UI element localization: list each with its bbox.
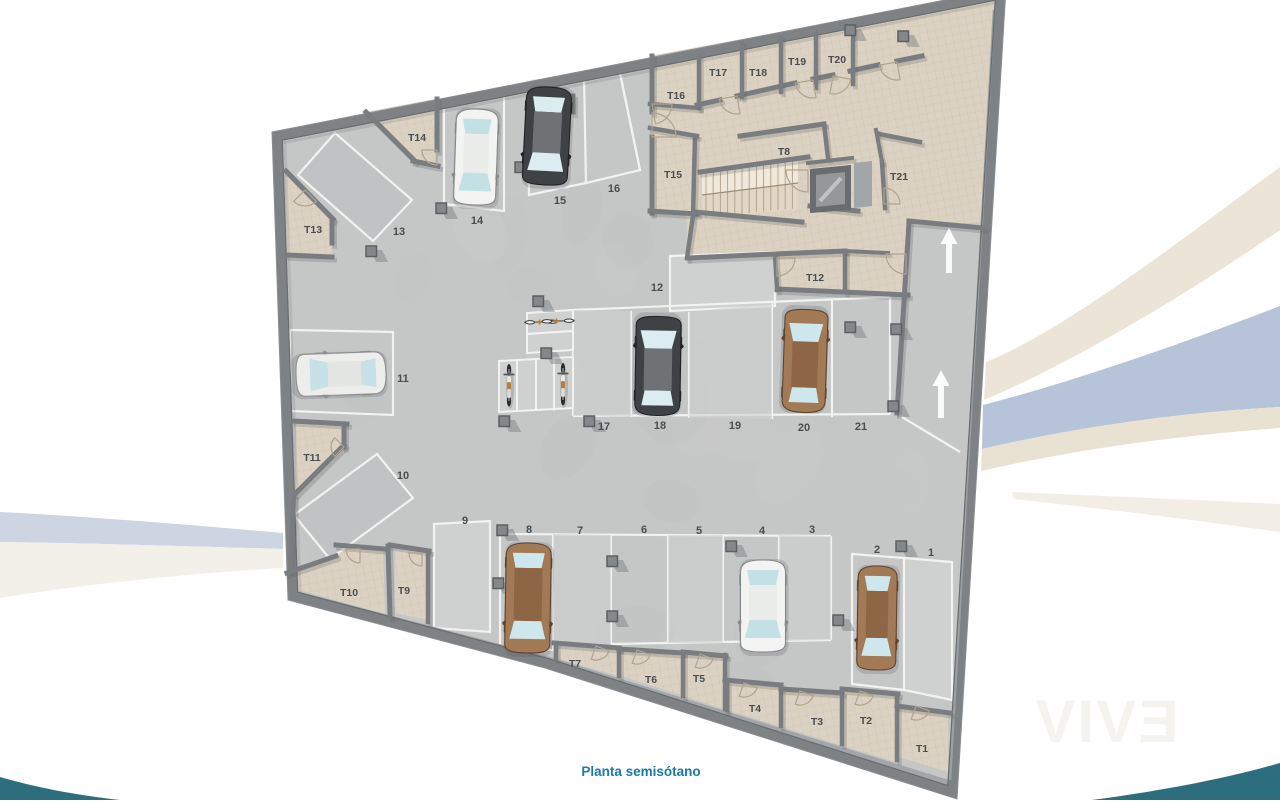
svg-text:13: 13 [393, 226, 405, 238]
svg-text:15: 15 [554, 195, 566, 207]
svg-text:T15: T15 [664, 169, 682, 181]
svg-text:T2: T2 [860, 715, 872, 727]
svg-text:12: 12 [651, 282, 663, 294]
svg-text:14: 14 [471, 215, 484, 227]
svg-text:9: 9 [462, 515, 468, 527]
svg-text:T8: T8 [778, 146, 790, 158]
svg-text:T5: T5 [693, 673, 705, 685]
svg-text:21: 21 [855, 421, 867, 433]
svg-text:7: 7 [577, 525, 583, 537]
svg-text:T20: T20 [828, 54, 846, 66]
svg-text:4: 4 [759, 525, 766, 537]
svg-text:T3: T3 [811, 716, 823, 728]
svg-text:8: 8 [526, 524, 532, 536]
svg-text:18: 18 [654, 420, 666, 432]
svg-text:T7: T7 [569, 658, 581, 670]
svg-text:T14: T14 [408, 132, 426, 144]
svg-text:10: 10 [397, 470, 409, 482]
svg-text:T21: T21 [890, 171, 908, 183]
svg-text:T16: T16 [667, 90, 685, 102]
svg-text:T1: T1 [916, 743, 928, 755]
svg-text:Planta semisótano: Planta semisótano [581, 764, 700, 779]
svg-text:T4: T4 [749, 703, 761, 715]
svg-text:11: 11 [397, 373, 409, 385]
svg-text:T11: T11 [303, 452, 321, 464]
svg-text:3: 3 [809, 524, 815, 536]
svg-text:5: 5 [696, 525, 702, 537]
svg-text:T19: T19 [788, 56, 806, 68]
svg-text:T10: T10 [340, 587, 358, 599]
svg-text:T13: T13 [304, 224, 322, 236]
svg-text:6: 6 [641, 524, 647, 536]
svg-text:16: 16 [608, 183, 620, 195]
svg-text:VIVƎ: VIVƎ [1036, 688, 1181, 755]
svg-text:1: 1 [928, 547, 934, 559]
svg-text:17: 17 [598, 421, 610, 433]
svg-text:19: 19 [729, 420, 741, 432]
svg-text:T9: T9 [398, 585, 410, 597]
svg-text:2: 2 [874, 544, 880, 556]
svg-text:T12: T12 [806, 272, 824, 284]
svg-text:20: 20 [798, 422, 810, 434]
svg-text:T6: T6 [645, 674, 657, 686]
svg-text:T17: T17 [709, 67, 727, 79]
svg-text:T18: T18 [749, 67, 767, 79]
